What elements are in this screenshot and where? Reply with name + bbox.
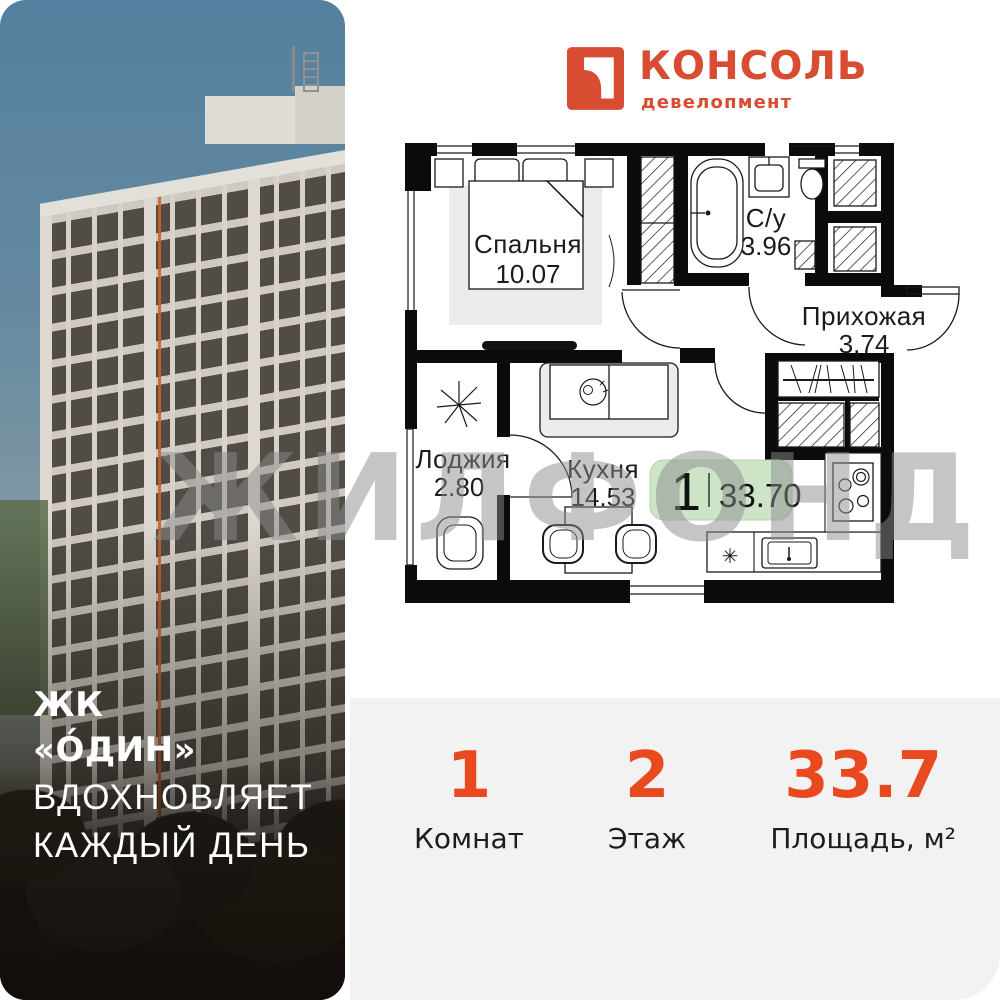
room-area-loggia: 2.80 xyxy=(434,472,485,502)
floorplan: Спальня 10.07 С/у 3.96 Прихожая 3.74 xyxy=(397,135,967,615)
stat-area-value: 33.7 xyxy=(770,744,956,808)
area-badge: 1 33.70 xyxy=(650,460,802,522)
coat-closet xyxy=(778,361,879,447)
room-label-kitchen: Кухня xyxy=(567,454,639,484)
room-label-hall: Прихожая xyxy=(802,301,926,331)
room-area-bathroom: 3.96 xyxy=(741,231,792,261)
room-area-hall: 3.74 xyxy=(839,329,890,359)
floorplan-drawing: Спальня 10.07 С/у 3.96 Прихожая 3.74 xyxy=(397,135,967,615)
nightstand xyxy=(585,159,613,187)
project-name-line2: «О́ДИН» xyxy=(33,733,313,767)
stats-panel: 1 Комнат 2 Этаж 33.7 Площадь, м² xyxy=(350,698,1000,1000)
badge-total-area: 33.70 xyxy=(719,477,802,514)
badge-rooms-count: 1 xyxy=(671,462,701,522)
toilet-tank xyxy=(799,159,825,168)
stat-floor: 2 Этаж xyxy=(608,744,686,1000)
developer-logo: КОНСОЛЬ девелопмент xyxy=(567,47,868,113)
nightstand xyxy=(435,159,463,187)
building-photo: ЖК «О́ДИН» ВДОХНОВЛЯЕТ КАЖДЫЙ ДЕНЬ xyxy=(0,0,345,1000)
room-area-kitchen: 14.53 xyxy=(570,482,635,512)
page: ЖК «О́ДИН» ВДОХНОВЛЯЕТ КАЖДЫЙ ДЕНЬ КОНСО… xyxy=(0,0,1000,1000)
project-title-block: ЖК «О́ДИН» ВДОХНОВЛЯЕТ КАЖДЫЙ ДЕНЬ xyxy=(33,688,313,863)
stat-area: 33.7 Площадь, м² xyxy=(770,744,956,1000)
vent-symbol: ✳ xyxy=(722,546,739,568)
developer-logo-text: КОНСОЛЬ девелопмент xyxy=(639,47,868,113)
room-area-bedroom: 10.07 xyxy=(495,259,560,289)
stat-floor-value: 2 xyxy=(608,744,686,808)
room-label-bedroom: Спальня xyxy=(474,229,582,259)
shaft xyxy=(834,227,876,271)
sink-bowl xyxy=(755,165,783,191)
plant xyxy=(437,381,481,427)
wardrobe xyxy=(641,157,674,283)
developer-tagline: девелопмент xyxy=(641,92,868,113)
stat-rooms-value: 1 xyxy=(414,744,524,808)
console-bracket-icon xyxy=(567,47,624,110)
project-slogan-line1: ВДОХНОВЛЯЕТ xyxy=(33,780,313,815)
room-label-bathroom: С/у xyxy=(746,203,787,233)
developer-name: КОНСОЛЬ xyxy=(639,47,868,86)
stat-rooms: 1 Комнат xyxy=(414,744,524,1000)
toilet xyxy=(801,169,823,199)
project-name-line1: ЖК xyxy=(33,688,313,722)
project-slogan-line2: КАЖДЫЙ ДЕНЬ xyxy=(33,828,313,863)
stat-area-label: Площадь, м² xyxy=(770,822,956,855)
shaft-small xyxy=(795,241,815,269)
stat-floor-label: Этаж xyxy=(608,822,686,855)
shaft xyxy=(834,160,876,206)
room-label-loggia: Лоджия xyxy=(415,444,510,474)
stat-rooms-label: Комнат xyxy=(414,822,524,855)
tv-console xyxy=(482,341,577,350)
